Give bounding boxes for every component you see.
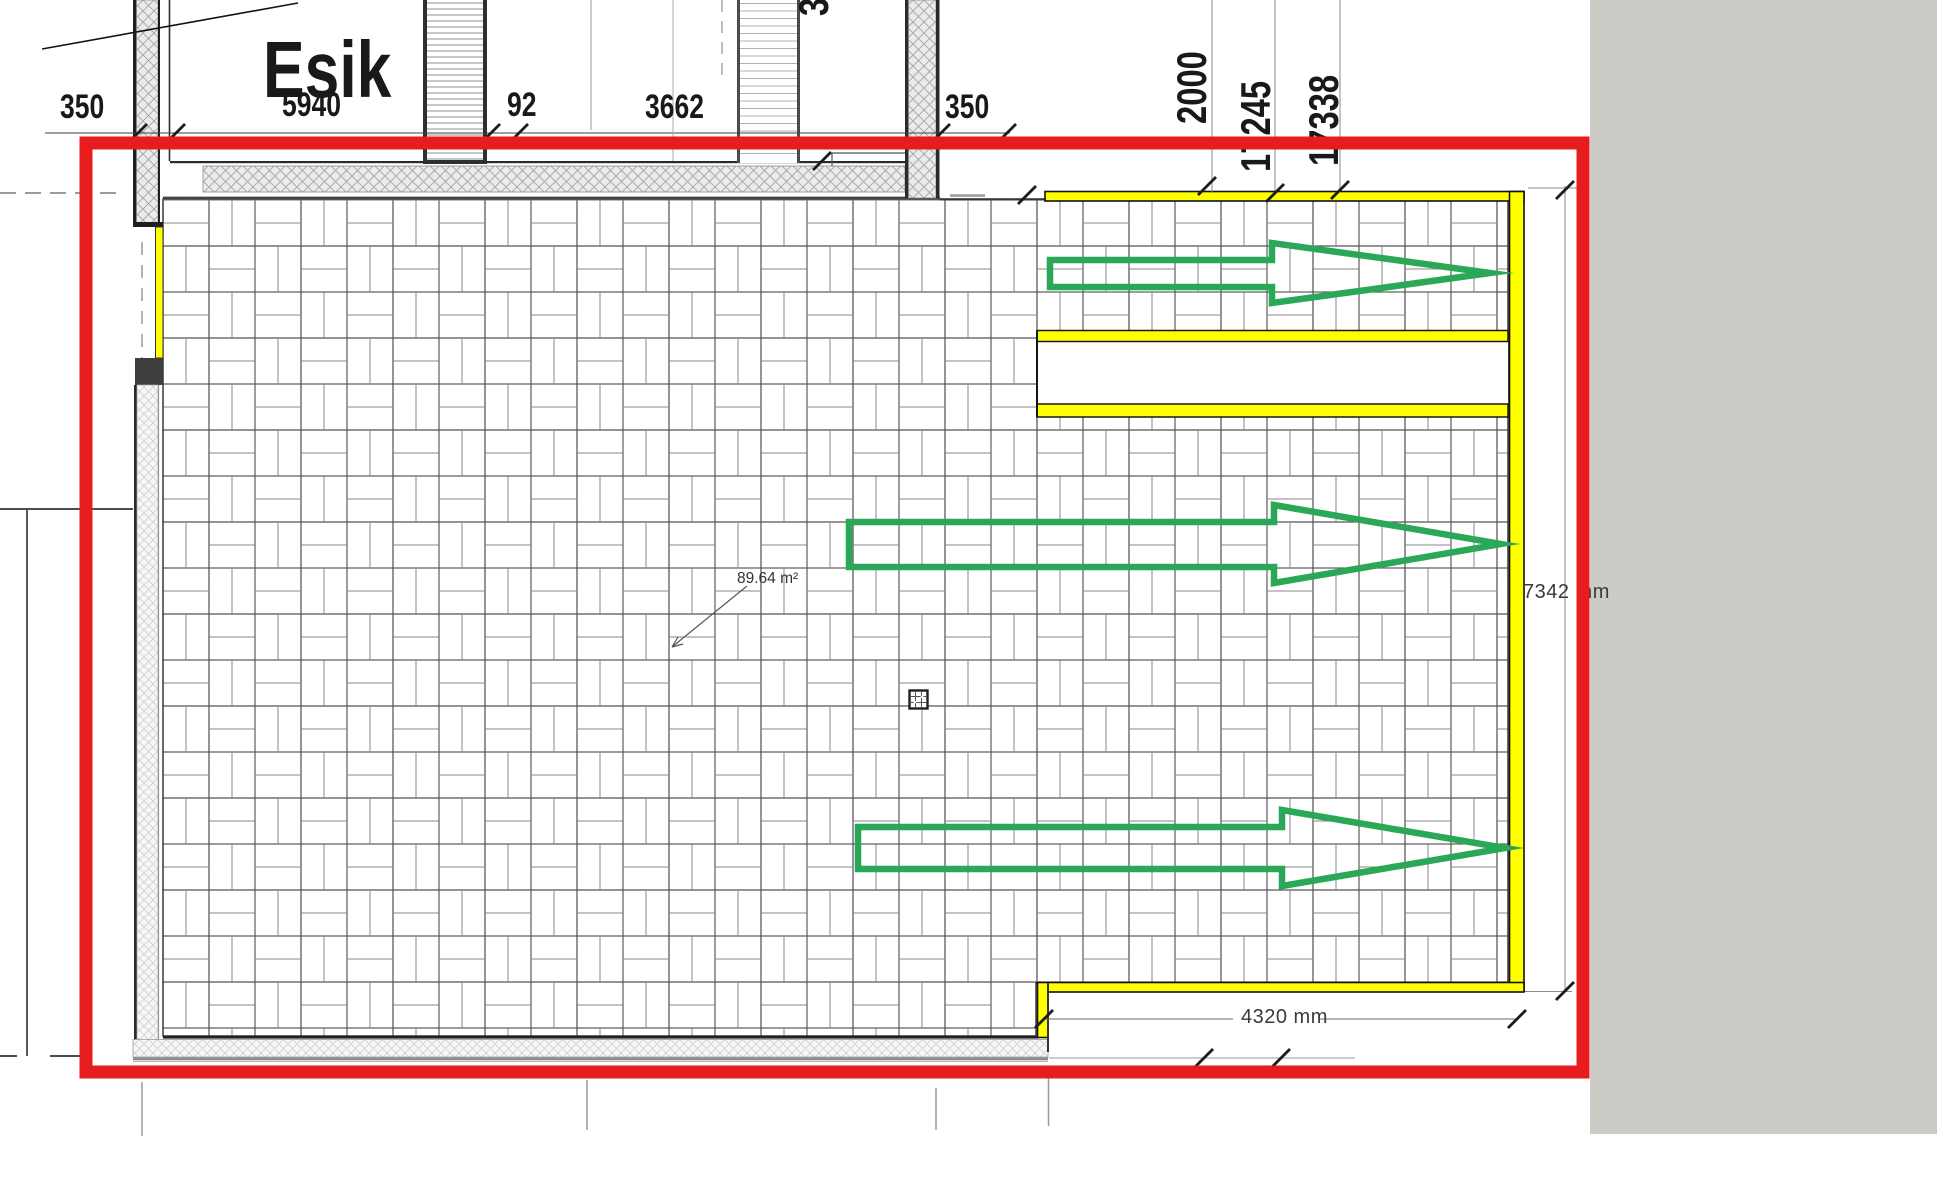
dim-room-width: 5940 [282, 90, 341, 121]
room-area-label: 89.64 m² [737, 572, 798, 586]
measure-height-label: 7342 mm [1523, 583, 1610, 601]
measure-width-label: 4320 mm [1241, 1008, 1328, 1026]
grid-icon[interactable] [908, 689, 929, 710]
dim-3662: 3662 [645, 92, 704, 123]
dim-2000-vertical: 2000 [1175, 51, 1209, 124]
window-leaf-2 [737, 0, 800, 163]
dim-17245-vertical: 17245 [1239, 81, 1273, 172]
dim-350-left: 350 [60, 92, 104, 123]
floorplan-canvas: Esik 5940 350 92 3662 350 2000 17245 173… [0, 0, 1937, 1189]
window-leaf-1 [423, 0, 487, 164]
plan-drawing [0, 0, 1937, 1189]
dim-17338-vertical: 17338 [1307, 75, 1341, 166]
dim-partial-3: 3 [797, 0, 831, 16]
dim-92: 92 [507, 90, 537, 121]
wall-channel-highlight [1037, 331, 1508, 418]
dim-350-right: 350 [945, 92, 989, 123]
left-wall [133, 0, 163, 1040]
wall-block [135, 358, 163, 385]
wall-column [905, 0, 940, 198]
side-panel-gray [1590, 0, 1937, 1134]
yellow-highlight-left-opening [156, 227, 164, 358]
floor-hatch-area [163, 199, 1508, 1036]
